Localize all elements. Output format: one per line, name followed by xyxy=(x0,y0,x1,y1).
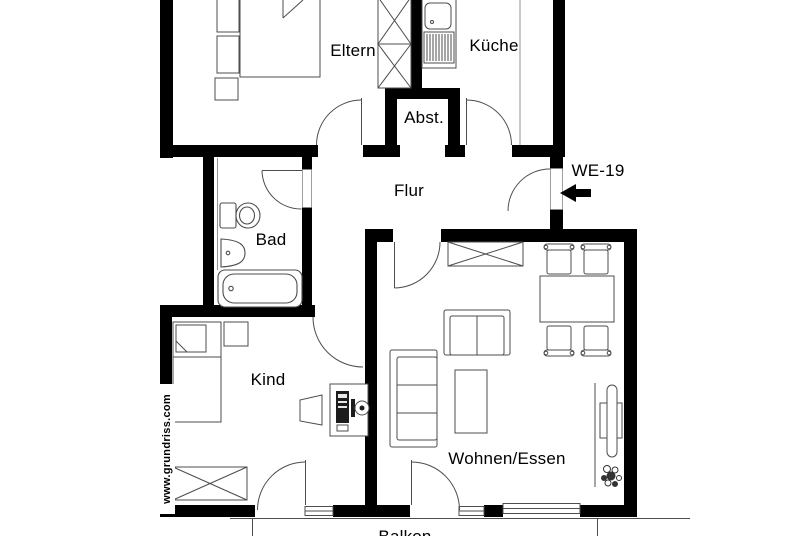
room-label-wohnen-essen: Wohnen/Essen xyxy=(448,449,565,469)
apartment-floorplan: Eltern Küche Abst. Flur Bad Kind Wohnen/… xyxy=(0,0,800,536)
watermark-text: www.grundriss.com xyxy=(161,394,173,504)
wall-band-a xyxy=(160,145,318,157)
wall-entry-top xyxy=(550,145,563,170)
wall-abst-left xyxy=(385,88,397,146)
wall-bottom-d xyxy=(580,505,637,517)
room-label-balkon: Balkon xyxy=(378,527,431,536)
dining-chair xyxy=(581,326,611,356)
room-label-abstellraum: Abst. xyxy=(404,108,444,128)
furniture-kueche xyxy=(422,0,456,68)
wall-kueche-right xyxy=(553,0,565,145)
door-kind-balcony xyxy=(258,460,306,510)
nightstand xyxy=(217,0,239,32)
door-bad xyxy=(262,170,312,210)
floorplan-drawing xyxy=(0,0,800,536)
window-kind-balcony xyxy=(305,507,333,516)
desk-chair xyxy=(300,395,322,425)
wall-bad-left xyxy=(203,152,214,317)
wall-bad-right-top xyxy=(302,145,312,170)
wall-band-b xyxy=(363,145,400,157)
plant xyxy=(602,466,622,487)
wall-band-c xyxy=(445,145,465,157)
room-label-kind: Kind xyxy=(251,370,286,390)
tv xyxy=(607,385,617,457)
dining-chair xyxy=(581,244,611,274)
sink-basin xyxy=(425,3,451,29)
door-wohnen xyxy=(395,242,441,288)
furniture-kind xyxy=(173,322,369,500)
entrance-arrow-icon xyxy=(560,184,591,202)
wall-wohnen-right xyxy=(624,229,637,517)
dresser xyxy=(215,78,238,100)
watermark: www.grundriss.com xyxy=(158,384,175,514)
sink-drainer xyxy=(424,32,454,63)
nightstand xyxy=(217,36,239,73)
bathtub xyxy=(218,270,302,307)
single-bed xyxy=(173,322,221,422)
coffee-table xyxy=(455,370,487,433)
fixtures-bad xyxy=(218,203,302,307)
window-wohnen-threshold xyxy=(459,507,484,516)
washbasin xyxy=(221,239,245,267)
wall-abst-right xyxy=(448,88,460,146)
wall-eltern-kueche xyxy=(410,0,422,88)
sideboard xyxy=(448,242,523,266)
wall-wohnen-top-a xyxy=(365,229,393,242)
toilet xyxy=(220,203,260,228)
wall-eltern-left xyxy=(160,0,173,158)
kitchen-sink-unit xyxy=(422,0,456,68)
door-eltern xyxy=(317,98,362,145)
double-bed xyxy=(240,0,320,77)
wall-wohnen-top-b xyxy=(441,229,637,242)
sofa-two-seat xyxy=(444,310,510,355)
window-wohnen-south xyxy=(503,504,580,514)
wardrobe-eltern xyxy=(378,0,411,88)
wall-bad-right xyxy=(302,207,312,317)
wall-kind-wohnen xyxy=(365,229,377,517)
room-label-eltern: Eltern xyxy=(330,41,376,61)
room-label-bad: Bad xyxy=(256,230,287,250)
wall-bottom-c xyxy=(484,505,503,517)
furniture-eltern xyxy=(215,0,411,100)
pillow xyxy=(176,325,206,352)
door-entrance xyxy=(508,169,563,212)
nightstand xyxy=(224,322,248,346)
wardrobe-kind xyxy=(173,467,247,500)
balcony-outline xyxy=(230,519,690,536)
dining-table xyxy=(540,276,614,322)
door-kueche xyxy=(467,98,512,145)
dining-chair xyxy=(544,244,574,274)
door-kind xyxy=(313,317,363,367)
room-label-kueche: Küche xyxy=(469,36,518,56)
room-label-flur: Flur xyxy=(394,181,424,201)
dining-chair xyxy=(544,326,574,356)
desk xyxy=(330,384,369,436)
sofa-three-seat xyxy=(390,350,437,447)
unit-number-label: WE-19 xyxy=(572,161,625,181)
wall-bottom-b xyxy=(333,505,410,517)
